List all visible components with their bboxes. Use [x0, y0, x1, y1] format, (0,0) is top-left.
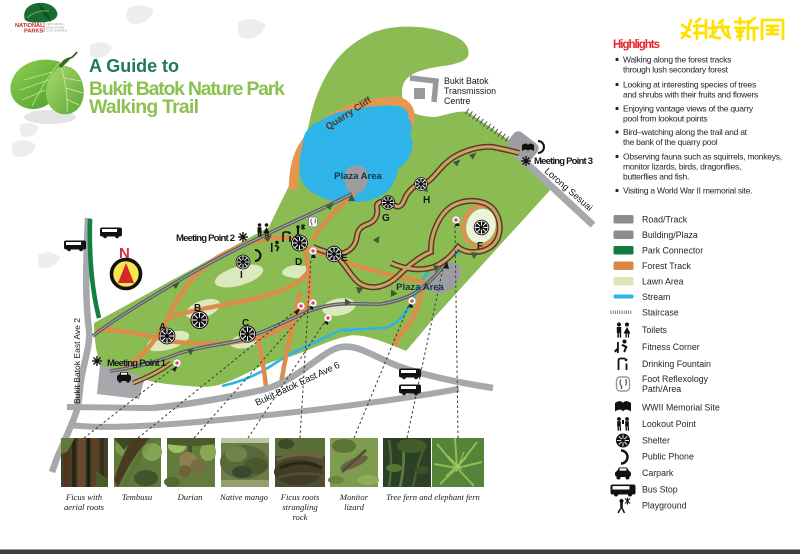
svg-text:Road/Track: Road/Track — [642, 215, 688, 225]
svg-text:I: I — [240, 270, 243, 281]
svg-text:Transmission: Transmission — [444, 86, 496, 96]
svg-text:Centre: Centre — [444, 96, 471, 106]
svg-text:Walking along the forest track: Walking along the forest tracks — [623, 55, 731, 65]
svg-text:Stream: Stream — [642, 292, 670, 302]
svg-text:D: D — [295, 257, 302, 268]
svg-text:butterflies and fish.: butterflies and fish. — [623, 172, 689, 182]
svg-text:Fitness Corner: Fitness Corner — [642, 342, 700, 352]
svg-text:aerial roots: aerial roots — [64, 502, 105, 512]
svg-text:H: H — [423, 195, 430, 206]
svg-text:PARKS: PARKS — [24, 29, 43, 35]
svg-text:Staircase: Staircase — [642, 308, 679, 318]
svg-text:Carpark: Carpark — [642, 468, 674, 478]
svg-text:Highlights: Highlights — [613, 39, 660, 51]
svg-text:Playground: Playground — [642, 501, 687, 511]
svg-text:Bus Stop: Bus Stop — [642, 485, 678, 495]
svg-text:Lookout Point: Lookout Point — [642, 419, 696, 429]
svg-text:C: C — [242, 318, 249, 329]
svg-text:Tree fern and elephant fern: Tree fern and elephant fern — [386, 492, 480, 502]
svg-text:the bank of the quarry pool: the bank of the quarry pool — [623, 137, 718, 147]
svg-text:Observing fauna such as squirr: Observing fauna such as squirrels, monke… — [623, 152, 782, 162]
svg-text:Building/Plaza: Building/Plaza — [642, 230, 698, 240]
svg-text:Public Phone: Public Phone — [642, 452, 694, 462]
svg-text:Foot Reflexology: Foot Reflexology — [642, 374, 709, 384]
svg-text:Ficus with: Ficus with — [65, 492, 102, 502]
svg-text:Bukit Batok East Ave 2: Bukit Batok East Ave 2 — [72, 318, 82, 404]
svg-text:A: A — [159, 322, 166, 333]
svg-text:Park Connector: Park Connector — [642, 246, 703, 256]
svg-text:Ficus roots: Ficus roots — [280, 492, 320, 502]
svg-text:Meeting Point 3: Meeting Point 3 — [534, 156, 593, 167]
svg-text:Walking Trail: Walking Trail — [89, 96, 199, 118]
svg-text:Forest Track: Forest Track — [642, 261, 691, 271]
svg-text:Tembusu: Tembusu — [122, 492, 152, 502]
svg-text:Plaza Area: Plaza Area — [396, 282, 444, 293]
svg-text:Meeting Point 1: Meeting Point 1 — [107, 358, 167, 369]
svg-text:A Guide to: A Guide to — [89, 56, 179, 76]
svg-text:Meeting Point 2: Meeting Point 2 — [176, 233, 235, 244]
svg-text:and shrubs with their fruits a: and shrubs with their fruits and flowers — [623, 90, 758, 100]
svg-text:monitor lizards, birds, dragon: monitor lizards, birds, dragonflies, — [623, 162, 741, 172]
svg-text:G: G — [382, 213, 390, 224]
svg-text:Looking at interesting species: Looking at interesting species of trees — [623, 80, 756, 90]
svg-text:Shelter: Shelter — [642, 436, 670, 446]
svg-text:Lawn Area: Lawn Area — [642, 277, 684, 287]
svg-text:Enjoying vantage views of the: Enjoying vantage views of the quarry — [623, 104, 754, 114]
svg-text:Path/Area: Path/Area — [642, 384, 681, 394]
svg-text:WWII Memorial Site: WWII Memorial Site — [642, 403, 720, 413]
svg-text:F: F — [477, 241, 483, 252]
svg-text:through lush secondary forest: through lush secondary forest — [623, 65, 729, 75]
svg-text:lizard: lizard — [344, 502, 364, 512]
svg-text:E: E — [341, 253, 348, 264]
svg-text:Plaza Area: Plaza Area — [334, 171, 382, 182]
svg-text:Native mango: Native mango — [219, 492, 269, 502]
svg-text:Bukit Batok: Bukit Batok — [444, 76, 489, 86]
svg-text:pool from lookout points: pool from lookout points — [623, 114, 707, 124]
svg-text:Monitor: Monitor — [339, 492, 369, 502]
svg-text:rock: rock — [293, 512, 308, 522]
svg-text:OUR GARDEN: OUR GARDEN — [46, 29, 67, 33]
svg-text:strangling: strangling — [282, 502, 318, 512]
svg-text:Durian: Durian — [177, 492, 203, 502]
svg-text:Visiting a World War II memori: Visiting a World War II memorial site. — [623, 186, 752, 196]
svg-text:B: B — [194, 303, 201, 314]
svg-text:Bird–watching along the trail: Bird–watching along the trail and at — [623, 127, 748, 137]
svg-text:Toilets: Toilets — [642, 325, 668, 335]
svg-text:Drinking Fountain: Drinking Fountain — [642, 359, 711, 369]
